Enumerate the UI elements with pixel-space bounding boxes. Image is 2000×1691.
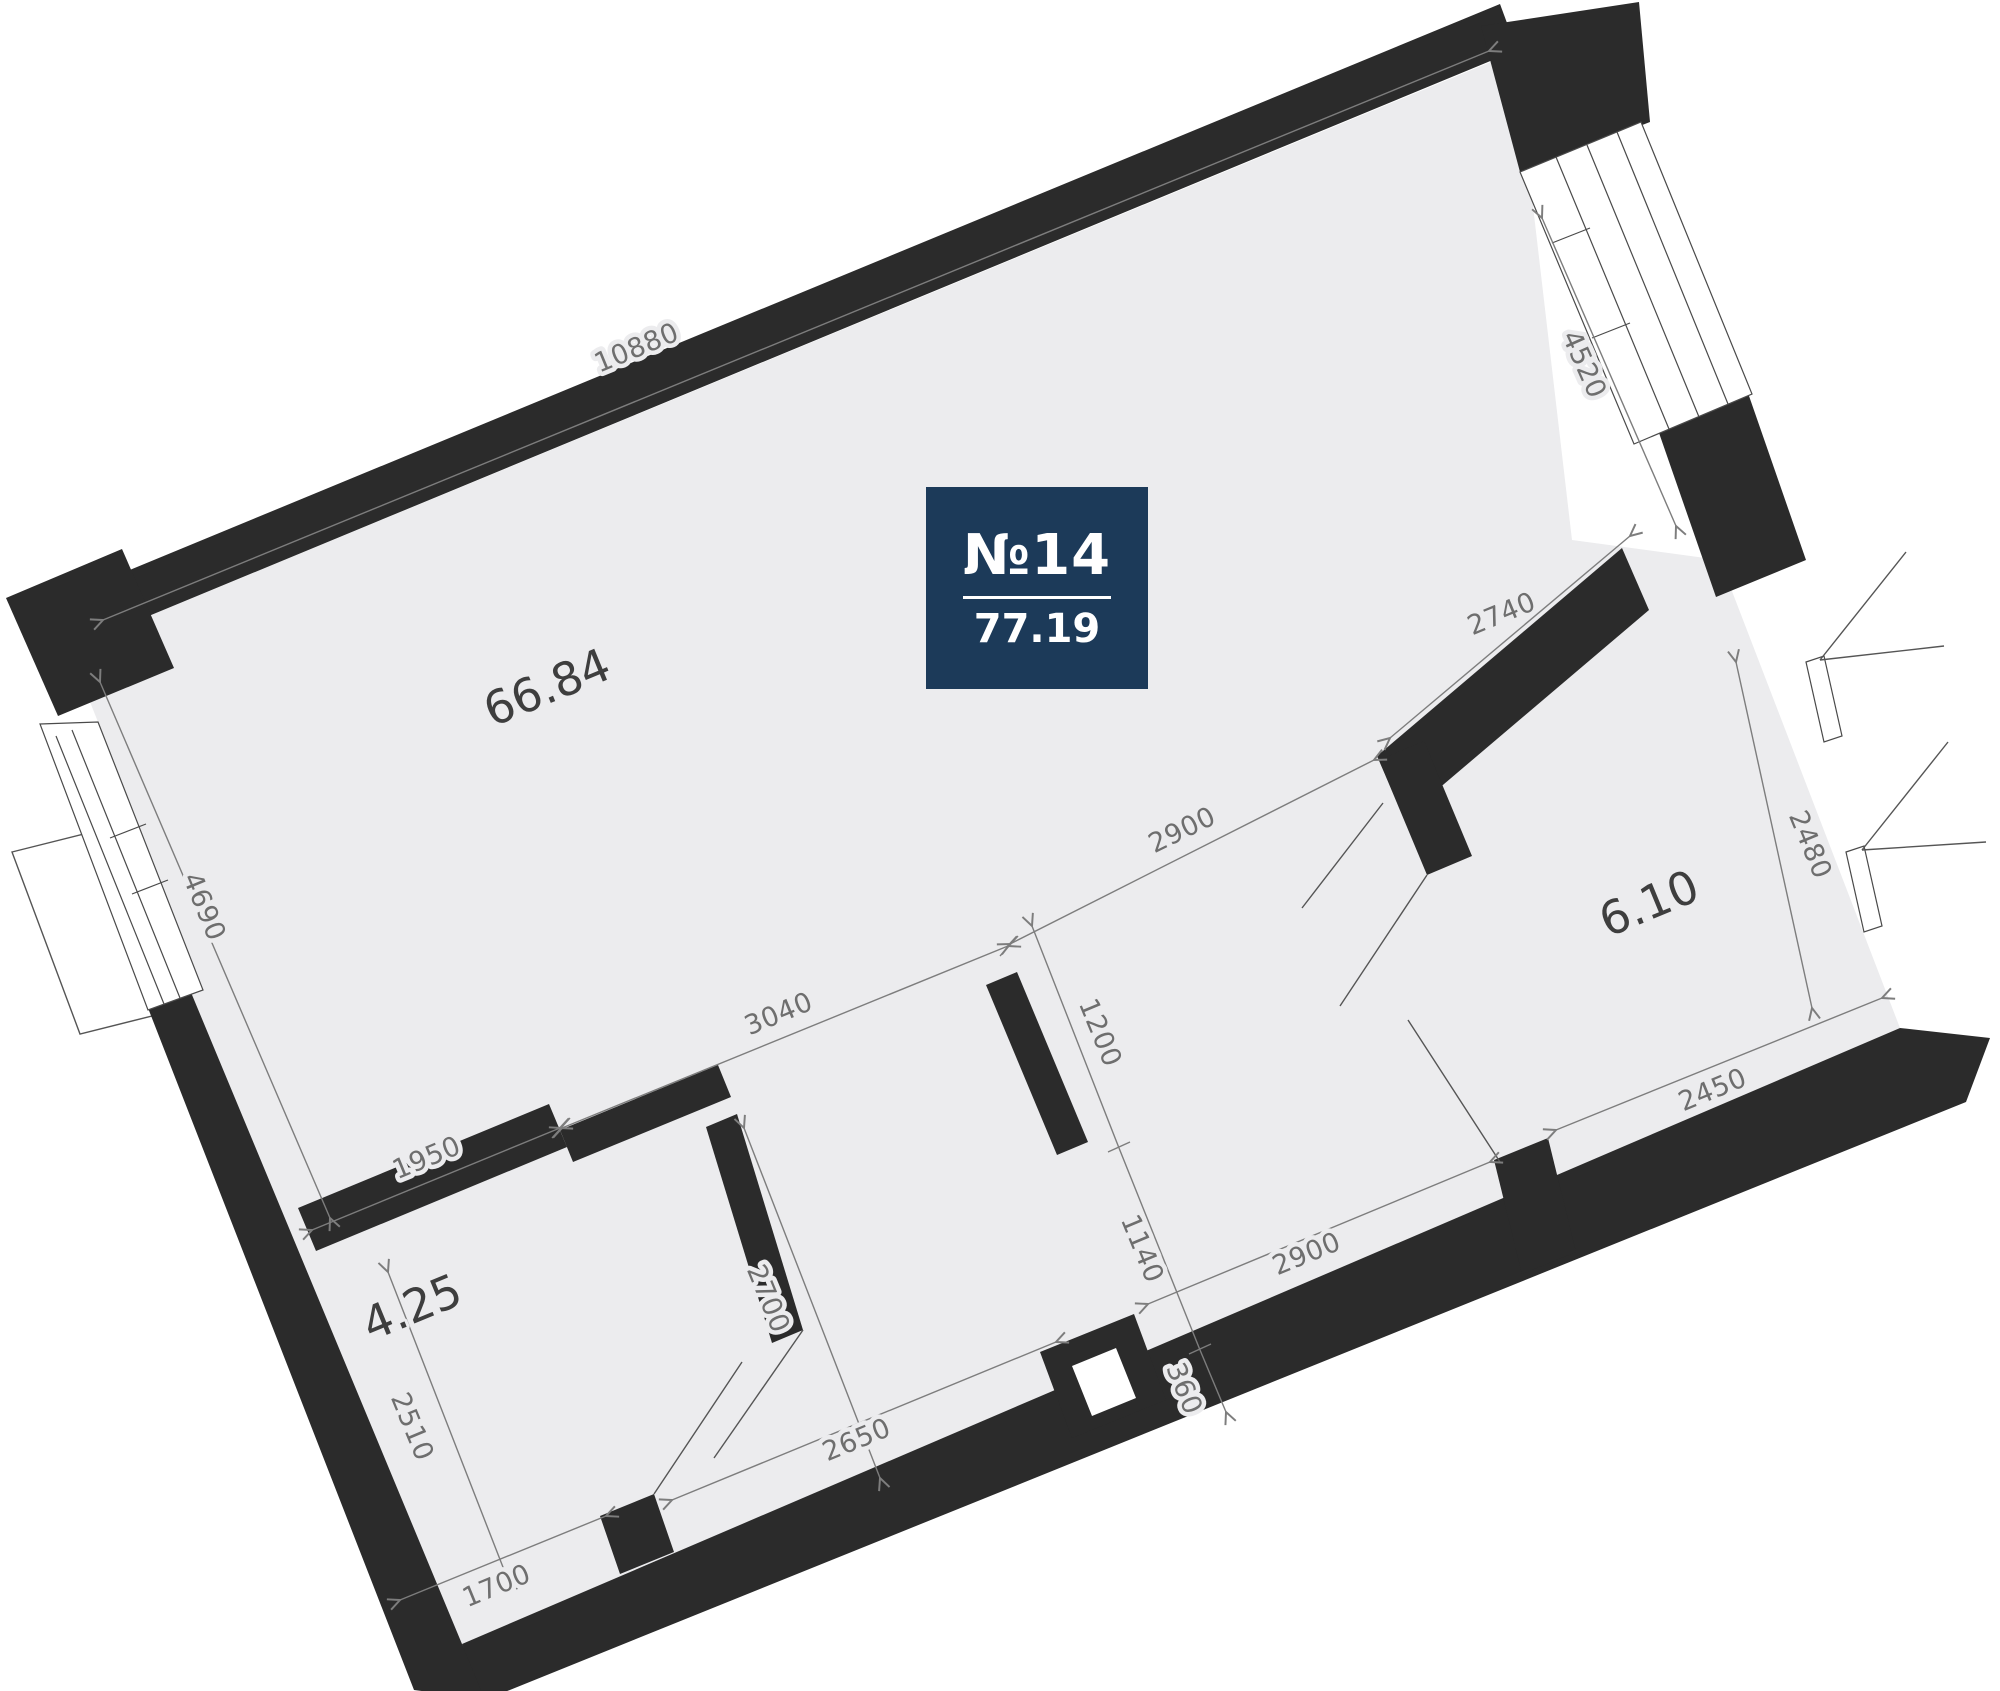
floorplan-canvas: 10880 4690 4520 2740 2900 3040 1950 2700… [0,0,2000,1691]
floorplan-drawing: 10880 4690 4520 2740 2900 3040 1950 2700… [0,0,2000,1691]
unit-badge: №14 77.19 [926,487,1148,689]
badge-divider [963,596,1111,599]
window-loggia-upper [1806,552,1944,742]
unit-area: 77.19 [974,609,1101,649]
window-loggia-lower [1846,742,1986,932]
unit-number: №14 [963,528,1111,584]
